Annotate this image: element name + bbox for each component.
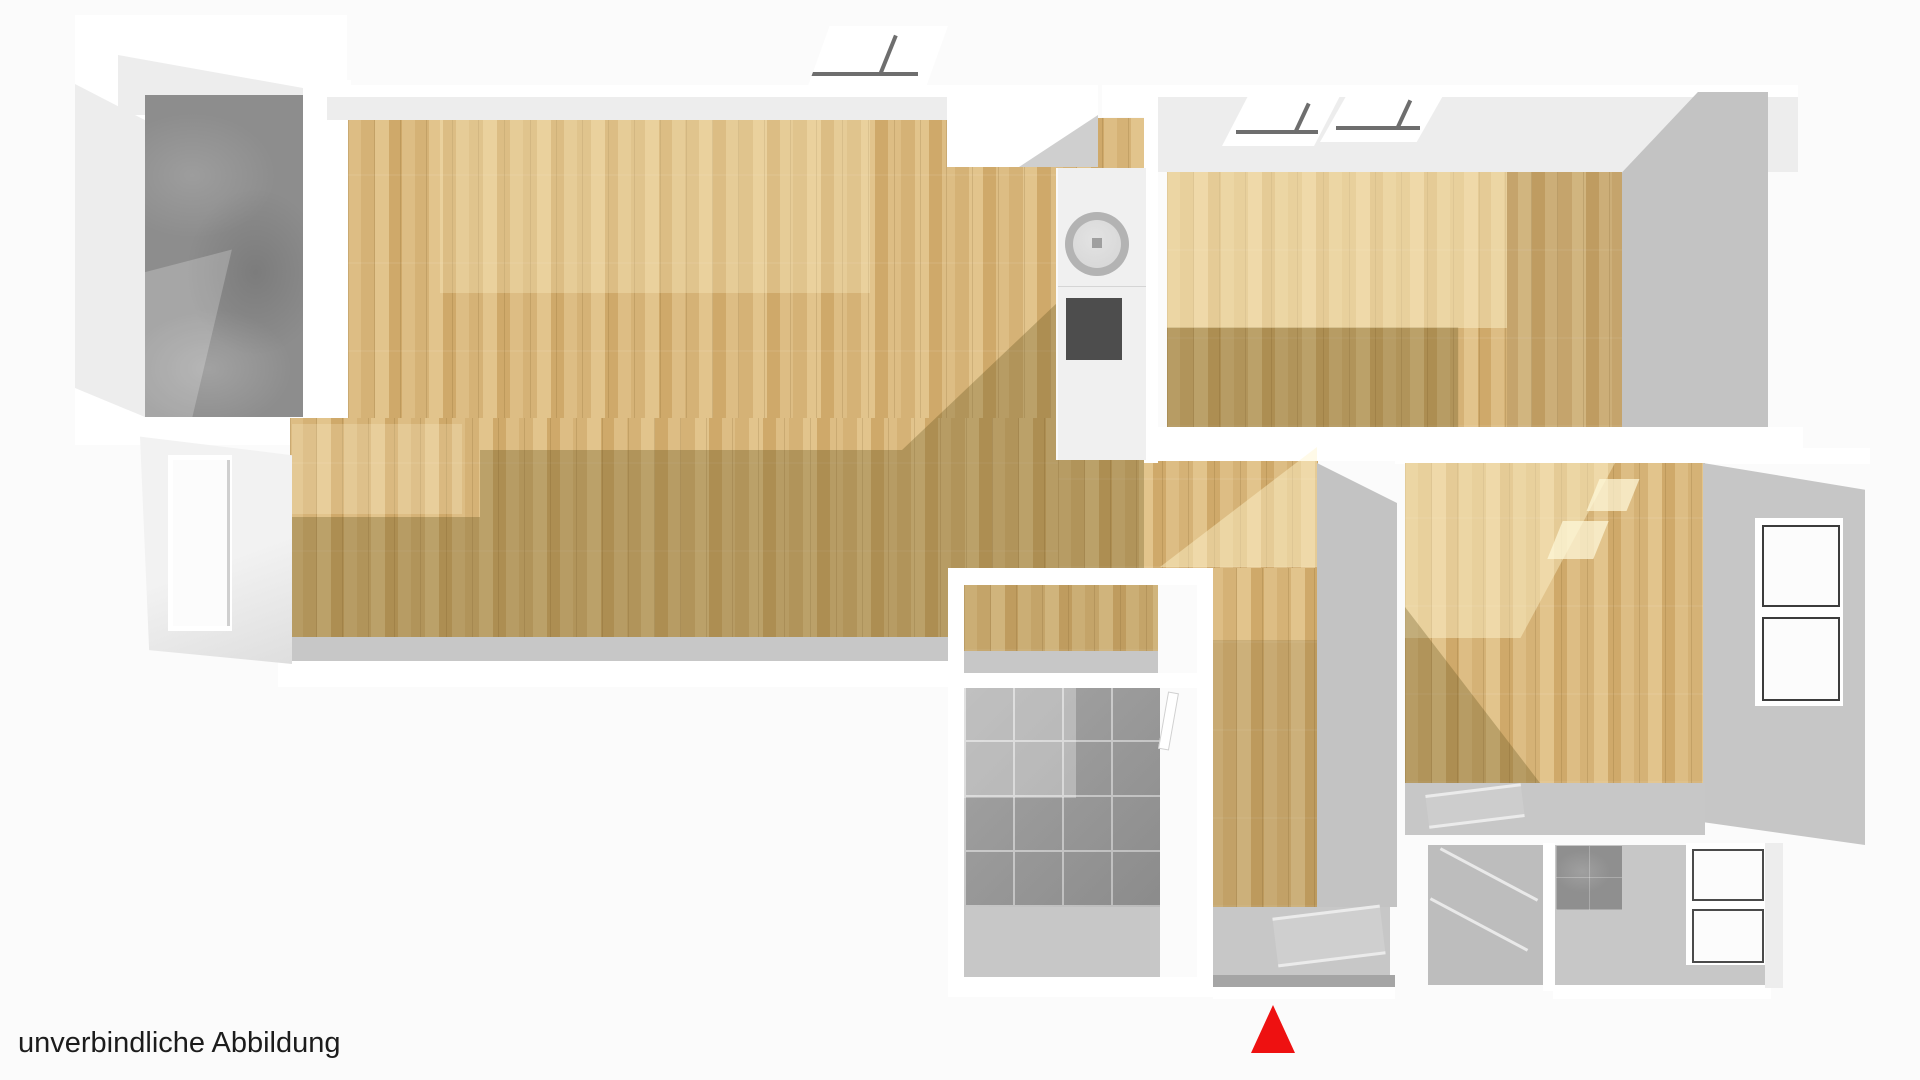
balcony-floor-light-patch [145,95,303,417]
storage-west-threshold-line-1 [1440,847,1539,901]
living-room-bottom-wall [278,661,980,687]
living-roof-window-frame-line [808,72,918,76]
kitchen-bedroom-divider-wall [1144,85,1158,463]
storage-window-pane-top [1692,849,1764,901]
bathroom-mid-wall [955,673,1210,688]
bedroom-floor [1167,172,1622,427]
bedroom-skylight-2-flap [1396,100,1412,129]
storage-window-pane-bottom [1692,909,1764,963]
balcony-floor [145,95,303,417]
bathroom-anteroom-shadow [964,585,1158,651]
storage-east-wall [1765,843,1783,988]
right-room-floor [1405,463,1705,783]
storage-dark-tile-patch [1556,846,1622,910]
kitchen-top-wall-block [1102,85,1147,117]
bathroom-anteroom-floor-shadow-strip [964,651,1158,673]
bathroom-east-wall [1197,568,1213,992]
bedroom-skylight-1-flap [1293,103,1310,134]
right-room-window-mullion [1762,607,1836,617]
living-west-window [168,455,232,631]
entrance-marker-icon [1251,1005,1295,1053]
right-room-door-threshold [1425,783,1524,828]
living-west-window-pane [173,460,230,626]
living-roof-window-flap-line [878,35,897,75]
bathroom-bottom-wall [948,977,1213,997]
entrance-door-threshold [1272,905,1385,968]
storage-divider-wall [1543,843,1555,991]
storage-window-mullion [1692,901,1760,909]
caption: unverbindliche Abbildung [18,1026,340,1060]
right-room-top-wall [1395,448,1870,464]
bathroom-anteroom-top-wall [948,568,1210,585]
living-room-sun-patch-lower [292,424,462,514]
bathroom-floor-light-patch [964,688,1076,798]
storage-west-threshold-line-2 [1430,897,1529,951]
bedroom-shadow-right [1507,172,1622,427]
corridor-east-wall-face [1317,463,1397,907]
kitchen-counter-seam [1058,286,1146,287]
storage-window [1686,843,1766,965]
kitchen-faucet [1092,238,1102,248]
kitchen-sink [1065,212,1129,276]
kitchen-counter [1056,168,1146,460]
bedroom-skylight-2-line [1336,126,1420,130]
bathroom-floor [964,688,1160,907]
right-room-window [1755,518,1843,706]
right-room-window-pane-bottom [1762,617,1840,701]
storage-west-gray-block [1428,845,1543,985]
right-room-floor-shadow [1405,783,1705,835]
bathroom-floor-shadow [964,907,1160,977]
right-room-window-pane-top [1762,525,1840,607]
kitchen-wall-stub-shadow-face [1019,115,1098,167]
corridor-shadow [1210,640,1317,907]
entrance-bottom-wall-edge [1213,975,1395,987]
kitchen-wall-stub [947,85,1098,167]
bathroom-west-wall [948,568,964,992]
kitchen-cooktop [1066,298,1122,360]
bathroom-door [1158,691,1179,750]
living-roof-window [790,26,948,92]
bedroom-sun-patch [1167,172,1507,328]
storage-bottom-wall [1553,985,1771,999]
entrance-bottom-wall [1213,987,1395,999]
floor-plan-render: unverbindliche Abbildung [0,0,1920,1080]
bathroom-anteroom-floor [964,585,1158,651]
living-room-sun-patch [440,118,870,293]
entrance-floor [1213,907,1390,977]
living-room-floor-shadow-strip [290,637,966,663]
bedroom-skylight-1-line [1236,130,1318,134]
